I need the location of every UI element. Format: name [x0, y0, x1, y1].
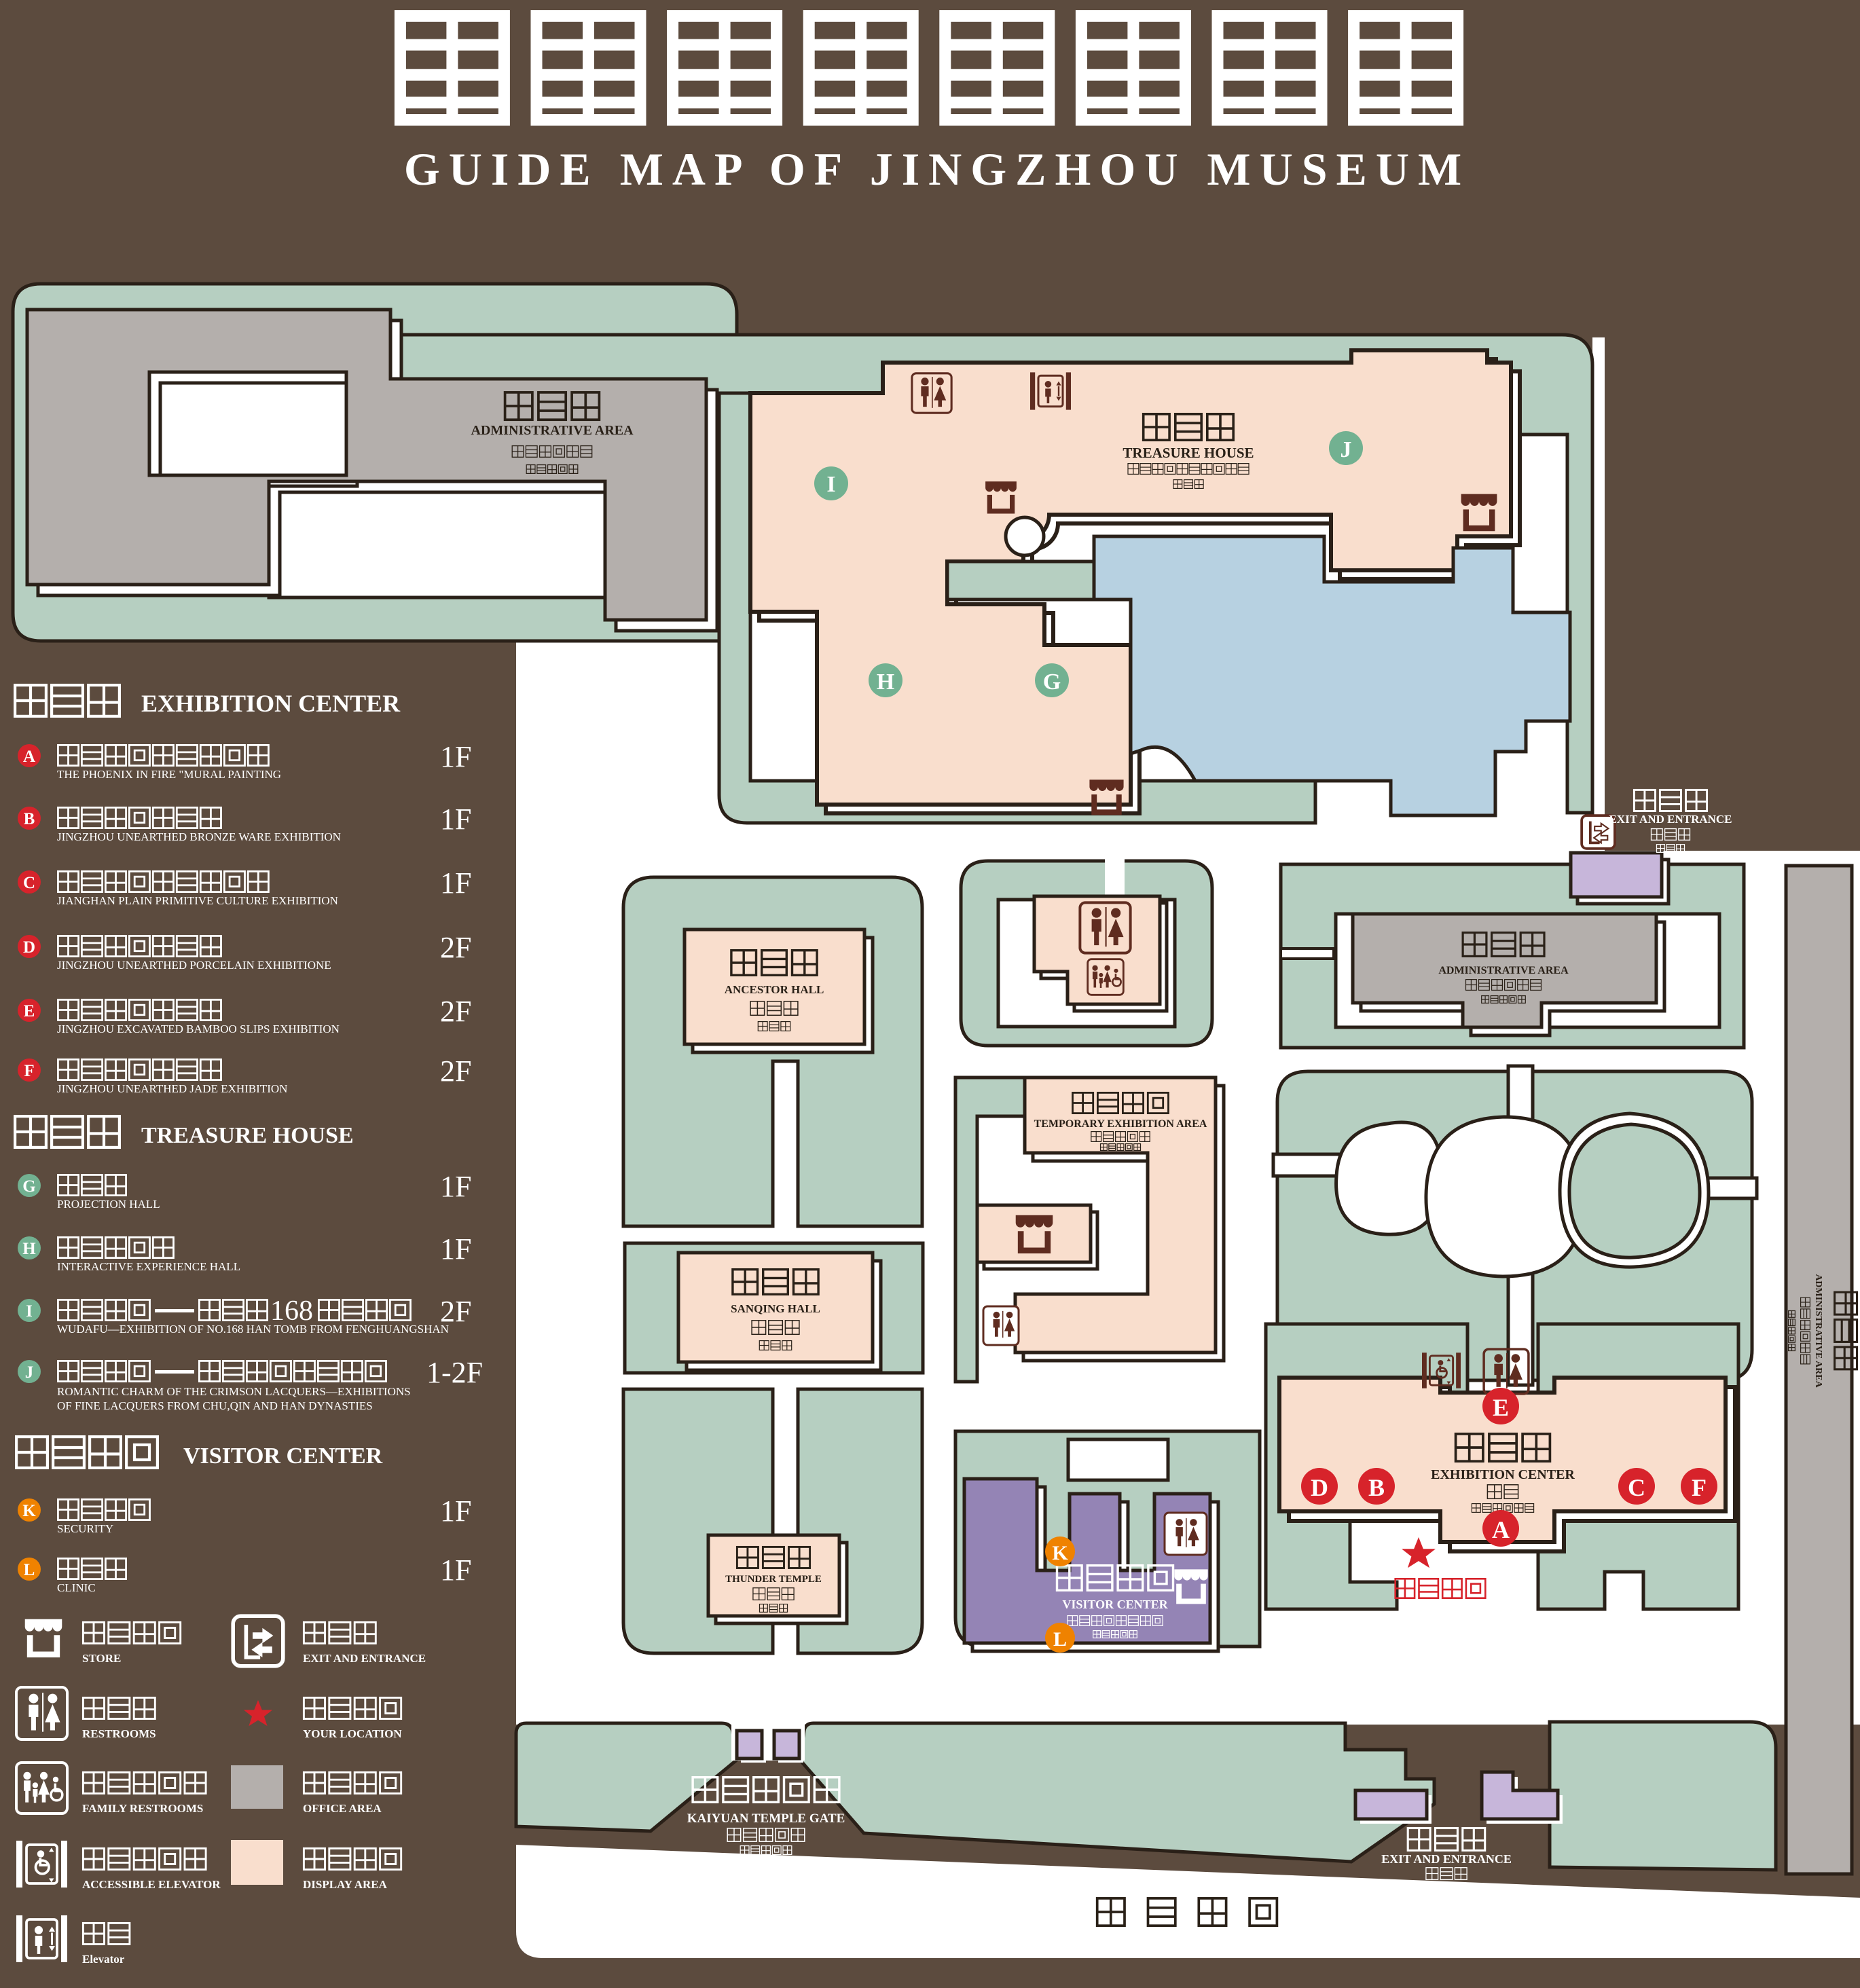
- svg-text:1-2F: 1-2F: [426, 1356, 483, 1389]
- svg-text:EXIT AND ENTRANCE: EXIT AND ENTRANCE: [1609, 813, 1732, 826]
- svg-text:JINGZHOU UNEARTHED BRONZE WARE: JINGZHOU UNEARTHED BRONZE WARE EXHIBITIO…: [57, 830, 341, 843]
- svg-text:J: J: [25, 1363, 34, 1382]
- svg-text:OFFICE AREA: OFFICE AREA: [303, 1802, 382, 1815]
- svg-text:RESTROOMS: RESTROOMS: [82, 1727, 156, 1740]
- svg-text:2F: 2F: [440, 1054, 471, 1088]
- svg-text:2F: 2F: [440, 995, 471, 1028]
- svg-text:WUDAFU—EXHIBITION OF NO.168 HA: WUDAFU—EXHIBITION OF NO.168 HAN TOMB FRO…: [57, 1323, 449, 1336]
- svg-text:C: C: [23, 874, 35, 892]
- svg-text:C: C: [1628, 1474, 1645, 1501]
- svg-text:OF FINE LACQUERS FROM CHU,QIN: OF FINE LACQUERS FROM CHU,QIN AND HAN DY…: [57, 1399, 373, 1412]
- svg-text:L: L: [1053, 1628, 1067, 1651]
- svg-text:1F: 1F: [440, 1170, 471, 1203]
- svg-text:1F: 1F: [440, 1232, 471, 1266]
- svg-text:DISPLAY AREA: DISPLAY AREA: [303, 1878, 388, 1891]
- svg-text:ANCESTOR HALL: ANCESTOR HALL: [725, 983, 824, 996]
- svg-text:ADMINISTRATIVE AREA: ADMINISTRATIVE AREA: [1438, 965, 1569, 976]
- svg-text:TREASURE HOUSE: TREASURE HOUSE: [1123, 445, 1254, 461]
- svg-text:ACCESSIBLE ELEVATOR: ACCESSIBLE ELEVATOR: [82, 1878, 221, 1891]
- svg-text:K: K: [1052, 1542, 1068, 1564]
- svg-text:A: A: [1492, 1516, 1510, 1543]
- svg-text:I: I: [826, 472, 835, 497]
- svg-text:THUNDER TEMPLE: THUNDER TEMPLE: [725, 1574, 822, 1585]
- svg-text:JIANGHAN PLAIN PRIMITIVE CULTU: JIANGHAN PLAIN PRIMITIVE CULTURE EXHIBIT…: [57, 894, 338, 907]
- svg-text:ROMANTIC CHARM OF THE CRIMSON: ROMANTIC CHARM OF THE CRIMSON LACQUERS—E…: [57, 1385, 411, 1398]
- svg-text:EXIT AND ENTRANCE: EXIT AND ENTRANCE: [1381, 1852, 1512, 1866]
- svg-text:VISITOR CENTER: VISITOR CENTER: [1062, 1598, 1168, 1611]
- svg-text:TREASURE HOUSE: TREASURE HOUSE: [141, 1123, 354, 1148]
- svg-text:ADMINISTRATIVE AREA: ADMINISTRATIVE AREA: [471, 423, 634, 438]
- svg-text:A: A: [23, 748, 35, 766]
- svg-text:TEMPORARY EXHIBITION AREA: TEMPORARY EXHIBITION AREA: [1034, 1118, 1207, 1130]
- svg-text:D: D: [1311, 1474, 1328, 1501]
- svg-text:2F: 2F: [440, 931, 471, 964]
- svg-text:1F: 1F: [440, 803, 471, 836]
- svg-text:D: D: [23, 938, 35, 957]
- svg-text:B: B: [24, 810, 35, 828]
- svg-text:PROJECTION HALL: PROJECTION HALL: [57, 1198, 160, 1211]
- svg-text:JINGZHOU UNEARTHED JADE EXHIBI: JINGZHOU UNEARTHED JADE EXHIBITION: [57, 1082, 287, 1095]
- svg-text:EXHIBITION CENTER: EXHIBITION CENTER: [141, 690, 401, 717]
- svg-text:INTERACTIVE EXPERIENCE HALL: INTERACTIVE EXPERIENCE HALL: [57, 1260, 240, 1273]
- svg-text:THE PHOENIX IN FIRE "MURAL PAI: THE PHOENIX IN FIRE "MURAL PAINTING: [57, 768, 281, 781]
- svg-text:EXIT AND ENTRANCE: EXIT AND ENTRANCE: [303, 1652, 426, 1665]
- svg-text:H: H: [22, 1240, 36, 1258]
- svg-text:JINGZHOU EXCAVATED BAMBOO SLIP: JINGZHOU EXCAVATED BAMBOO SLIPS EXHIBITI…: [57, 1023, 340, 1035]
- svg-text:F: F: [24, 1062, 34, 1080]
- svg-text:VISITOR CENTER: VISITOR CENTER: [183, 1443, 383, 1469]
- svg-text:Elevator: Elevator: [82, 1953, 125, 1966]
- svg-text:STORE: STORE: [82, 1652, 121, 1665]
- svg-text:B: B: [1368, 1474, 1385, 1501]
- svg-text:GUIDE MAP OF JINGZHOU MUSEUM: GUIDE MAP OF JINGZHOU MUSEUM: [404, 143, 1470, 195]
- svg-text:SECURITY: SECURITY: [57, 1522, 113, 1535]
- svg-text:L: L: [24, 1561, 35, 1579]
- svg-text:G: G: [22, 1177, 35, 1196]
- svg-text:JINGZHOU UNEARTHED PORCELAIN E: JINGZHOU UNEARTHED PORCELAIN EXHIBITIONE: [57, 959, 331, 972]
- svg-text:1F: 1F: [440, 866, 471, 900]
- svg-text:1F: 1F: [440, 740, 471, 773]
- svg-text:1F: 1F: [440, 1494, 471, 1528]
- svg-text:I: I: [26, 1302, 33, 1321]
- svg-text:G: G: [1043, 669, 1061, 695]
- svg-text:E: E: [24, 1002, 35, 1020]
- svg-text:FAMILY RESTROOMS: FAMILY RESTROOMS: [82, 1802, 203, 1815]
- svg-text:E: E: [1493, 1394, 1509, 1421]
- svg-text:EXHIBITION CENTER: EXHIBITION CENTER: [1431, 1467, 1575, 1482]
- svg-text:ADMINISTRATIVE AREA: ADMINISTRATIVE AREA: [1813, 1274, 1823, 1388]
- svg-text:K: K: [22, 1502, 36, 1520]
- svg-text:1F: 1F: [440, 1553, 471, 1587]
- svg-text:YOUR LOCATION: YOUR LOCATION: [303, 1727, 402, 1740]
- svg-text:F: F: [1692, 1474, 1707, 1501]
- svg-text:H: H: [877, 669, 894, 695]
- svg-text:KAIYUAN TEMPLE GATE: KAIYUAN TEMPLE GATE: [687, 1811, 845, 1826]
- svg-text:CLINIC: CLINIC: [57, 1581, 96, 1594]
- svg-text:SANQING HALL: SANQING HALL: [731, 1302, 820, 1315]
- svg-text:J: J: [1341, 437, 1352, 462]
